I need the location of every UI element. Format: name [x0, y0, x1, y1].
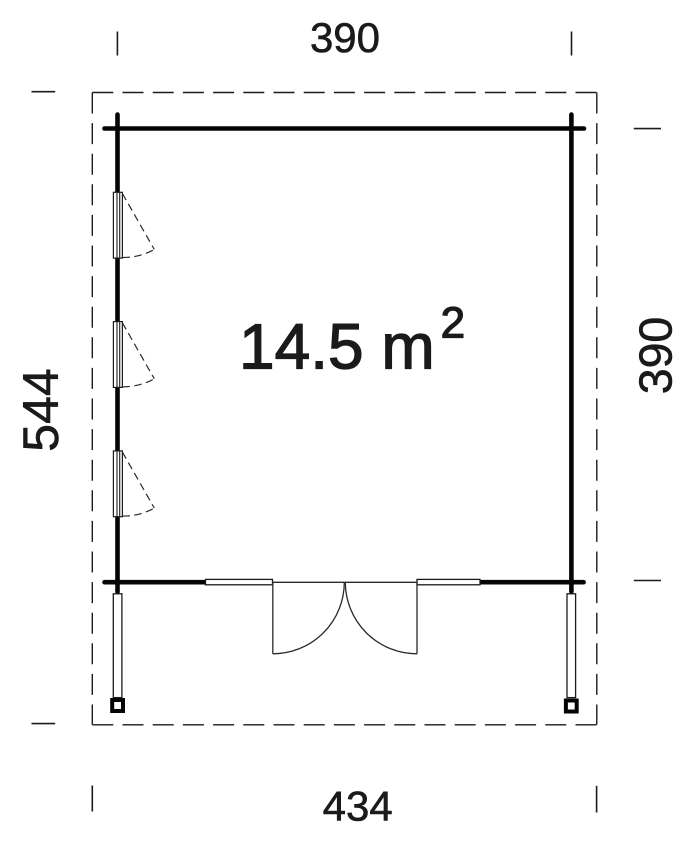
svg-text:390: 390	[630, 317, 681, 395]
svg-text:390: 390	[310, 14, 380, 61]
svg-text:434: 434	[323, 783, 393, 830]
svg-text:14.5 m2: 14.5 m2	[239, 299, 465, 383]
svg-text:544: 544	[13, 368, 69, 451]
